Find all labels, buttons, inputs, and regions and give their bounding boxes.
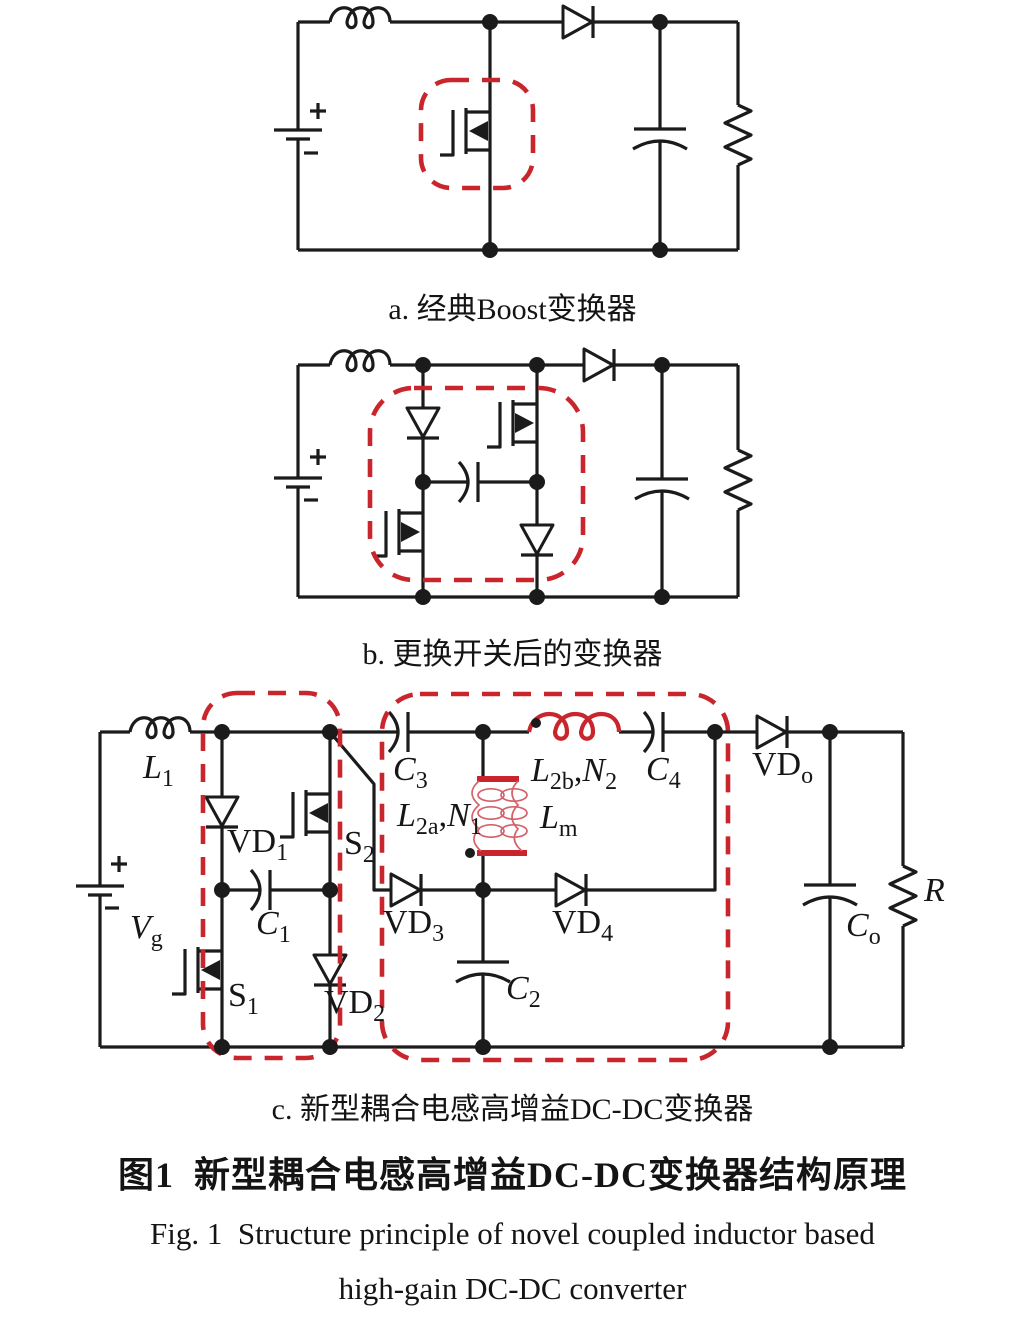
input-inductor-icon [130, 718, 190, 738]
caption-c: c. 新型耦合电感高增益DC-DC变换器 [0, 1084, 1025, 1128]
output-diode-vdo-icon [757, 716, 787, 748]
circuit-b-switch-cell [274, 349, 751, 605]
polarity-dot [531, 718, 541, 728]
cell-mosfet-bottom-icon [373, 509, 423, 556]
circuit-a-classic-boost [274, 6, 751, 258]
figure-title-en-line2: high-gain DC-DC converter [0, 1271, 1025, 1307]
figure-page: L1 Vg VD1 S2 C1 S1 VD2 C3 L2a,N1 VD3 L2b… [0, 0, 1025, 1344]
mosfet-switch-icon [440, 108, 490, 155]
caption-b: b. 更换开关后的变换器 [0, 629, 1025, 673]
label-C3: C3 [393, 751, 428, 794]
label-S2: S2 [344, 825, 375, 868]
label-C2: C2 [506, 970, 541, 1013]
plus-sign-icon [111, 856, 127, 872]
cell-diode-bottom-icon [521, 525, 553, 555]
diode-icon [563, 6, 593, 38]
output-diode-icon [584, 349, 614, 381]
plus-sign-icon [310, 103, 326, 119]
label-Vg: Vg [130, 909, 163, 952]
label-Lm: Lm [539, 799, 578, 842]
circuit-c-coupled-inductor-converter: L1 Vg VD1 S2 C1 S1 VD2 C3 L2a,N1 VD3 L2b… [76, 693, 945, 1060]
figure-title-zh: 图1 新型耦合电感高增益DC-DC变换器结构原理 [0, 1146, 1025, 1198]
label-C4: C4 [646, 751, 681, 794]
polarity-dot [465, 848, 475, 858]
cell-mosfet-top-icon [487, 400, 537, 447]
mosfet-s2-icon [280, 790, 330, 837]
load-resistor-icon [725, 450, 751, 510]
label-L2b-N2: L2b,N2 [530, 752, 617, 795]
label-R: R [923, 872, 945, 909]
label-VD2: VD2 [324, 984, 385, 1027]
label-VD4: VD4 [552, 904, 613, 947]
label-VD3: VD3 [383, 904, 444, 947]
caption-a: a. 经典Boost变换器 [0, 284, 1025, 328]
label-L1: L1 [142, 749, 174, 792]
wires [298, 365, 738, 597]
label-VD1: VD1 [227, 823, 288, 866]
diode-vd3-icon [391, 874, 421, 906]
label-C1: C1 [256, 905, 291, 948]
inductor-icon [330, 8, 390, 28]
inductor-icon [330, 351, 390, 371]
cell-diode-top-icon [407, 408, 439, 438]
load-resistor-icon [725, 105, 751, 165]
coupled-inductor-secondary-coil [529, 714, 619, 739]
plus-sign-icon [310, 449, 326, 465]
label-Co: Co [846, 907, 881, 950]
mosfet-s1-icon [172, 947, 222, 994]
wires [298, 22, 738, 250]
battery-icon [274, 130, 322, 139]
label-L2a-N1: L2a,N1 [396, 797, 482, 840]
label-S1: S1 [228, 977, 259, 1020]
diode-vd4-icon [556, 874, 586, 906]
figure-title-en-line1: Fig. 1 Structure principle of novel coup… [0, 1216, 1025, 1252]
load-resistor-icon [890, 866, 916, 926]
label-VDo: VDo [752, 746, 813, 789]
node-dots [482, 14, 668, 258]
battery-icon [274, 478, 322, 487]
battery-icon [76, 886, 124, 895]
